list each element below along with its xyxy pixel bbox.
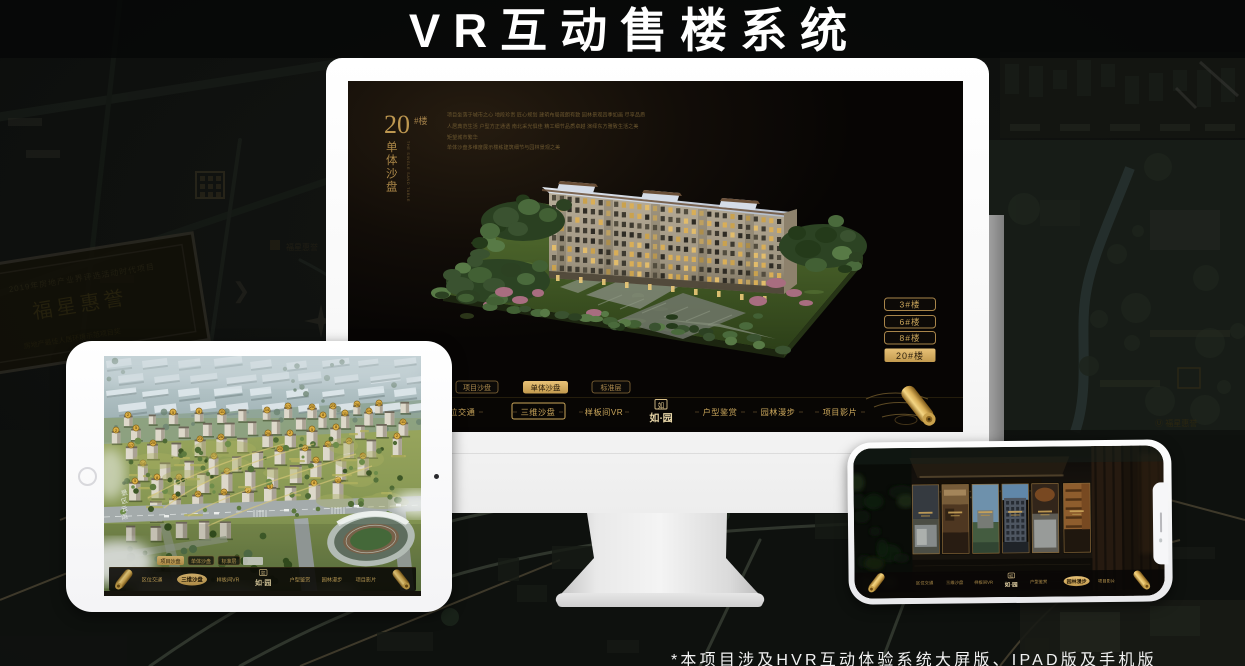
svg-text:如: 如 [1009,572,1013,578]
svg-text:29: 29 [222,491,226,495]
svg-text:26: 26 [219,435,223,439]
svg-text:23: 23 [331,404,335,408]
svg-text:2: 2 [396,434,398,438]
svg-text:8#楼: 8#楼 [899,333,920,343]
svg-text:11: 11 [336,479,340,483]
svg-text:单体沙盘多维度展示楼栋建筑细节与园林景观之美: 单体沙盘多维度展示楼栋建筑细节与园林景观之美 [447,144,560,151]
svg-text:福星惠誉: 福星惠誉 [286,242,318,252]
svg-text:2: 2 [127,413,129,417]
svg-text:户型鉴赏: 户型鉴赏 [702,407,737,417]
svg-text:标准层: 标准层 [600,383,621,392]
svg-text:23: 23 [198,437,202,441]
svg-text:体: 体 [386,153,398,167]
svg-text:8: 8 [322,413,324,417]
svg-text:❯: ❯ [232,278,250,304]
svg-text:单体沙盘: 单体沙盘 [530,383,560,393]
svg-text:项目沙盘: 项目沙盘 [463,383,491,392]
svg-text:20: 20 [151,441,155,445]
svg-text:如·园: 如·园 [649,412,672,425]
svg-text:项目坐落于城市之心 地段珍贵 匠心规划 建筑布局疏朗有致 园: 项目坐落于城市之心 地段珍贵 匠心规划 建筑布局疏朗有致 园林景观四季如画 尽享… [447,112,645,119]
svg-text:盘: 盘 [386,180,398,194]
svg-text:5: 5 [135,426,137,430]
svg-text:20: 20 [384,110,410,139]
svg-text:6#楼: 6#楼 [899,317,920,327]
svg-text:20#楼: 20#楼 [895,350,923,361]
svg-text:8: 8 [198,410,200,414]
svg-text:5: 5 [311,428,313,432]
svg-text:8: 8 [156,476,158,480]
svg-text:项目影片: 项目影片 [822,407,857,417]
svg-text:29: 29 [266,432,270,436]
svg-text:11: 11 [343,412,347,416]
svg-text:17: 17 [129,444,133,448]
svg-text:8: 8 [313,481,315,485]
svg-text:园林漫步: 园林漫步 [760,407,795,417]
svg-text:26: 26 [355,403,359,407]
svg-text:3#楼: 3#楼 [899,300,920,310]
svg-text:26: 26 [196,492,200,496]
svg-text:三维沙盘: 三维沙盘 [520,407,555,417]
svg-text:矩望城市繁华: 矩望城市繁华 [447,134,478,141]
svg-text:人居典范生活 户型方正通透 南北采光俱佳 精工细节品质卓越: 人居典范生活 户型方正通透 南北采光俱佳 精工细节品质卓越 演绎东方雅致生活之美 [447,123,639,130]
svg-text:11: 11 [220,410,224,414]
svg-text:THE SINGLE SAND TABLE: THE SINGLE SAND TABLE [406,141,410,202]
svg-text:2: 2 [115,429,117,433]
svg-text:5: 5 [269,485,271,489]
svg-text:14: 14 [367,409,371,413]
svg-text:如: 如 [657,401,664,410]
svg-text:20: 20 [310,405,314,409]
svg-text:Ⓤ 福星惠誉: Ⓤ 福星惠誉 [1155,418,1197,428]
svg-text:14: 14 [265,408,269,412]
svg-text:5: 5 [134,479,136,483]
svg-text:沙: 沙 [386,167,398,180]
svg-text:样板间VR: 样板间VR [584,407,622,417]
svg-text:园林漫步: 园林漫步 [1067,578,1087,585]
svg-text:11: 11 [401,420,405,424]
svg-text:2: 2 [289,431,291,435]
svg-text:17: 17 [286,405,290,409]
svg-text:单: 单 [386,141,398,154]
svg-text:20: 20 [278,447,282,451]
svg-text:8: 8 [335,425,337,429]
svg-text:#楼: #楼 [414,115,428,126]
svg-text:5: 5 [172,411,174,415]
svg-text:29: 29 [377,402,381,406]
svg-text:17: 17 [314,459,318,463]
svg-text:如·园: 如·园 [1005,580,1018,588]
